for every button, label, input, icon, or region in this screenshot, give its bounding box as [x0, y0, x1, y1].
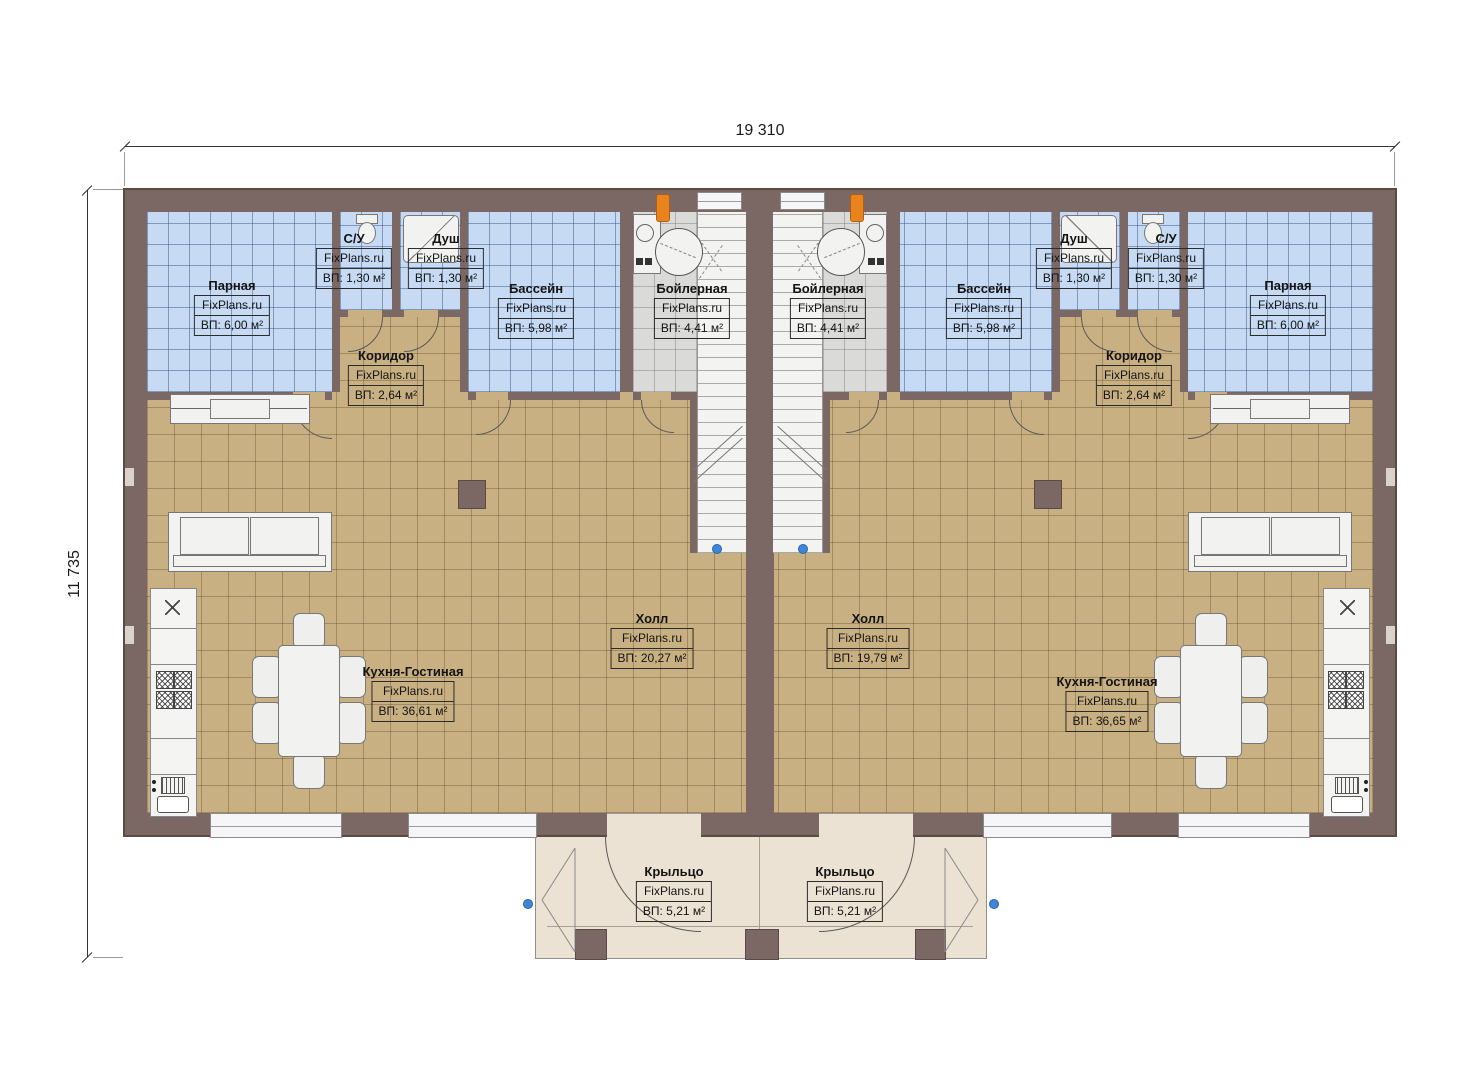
faucet-dot: [152, 780, 156, 784]
room-info-box: FixPlans.ru ВП: 5,98 м²: [498, 298, 574, 339]
sofa: [1188, 512, 1352, 572]
door-gap: [849, 392, 879, 400]
sink-basin-icon: [1331, 796, 1363, 813]
stairs: [773, 212, 823, 553]
kitchen-cabinet: [1323, 628, 1370, 666]
sink-drainer-icon: [161, 777, 185, 794]
column: [1034, 480, 1062, 509]
sink-icon: [636, 224, 654, 242]
watermark-text: FixPlans.ru: [828, 629, 909, 648]
sofa: [168, 512, 332, 572]
room-name: Бассейн: [498, 281, 574, 296]
room-info-box: FixPlans.ru ВП: 36,61 м²: [372, 681, 455, 722]
dimension-width-label: 19 310: [736, 122, 785, 140]
watermark-text: FixPlans.ru: [612, 629, 693, 648]
room-name: Кухня-Гостиная: [362, 664, 463, 679]
chair: [293, 753, 325, 789]
faucet-dot: [1364, 788, 1368, 792]
chair: [293, 613, 325, 649]
room-area: ВП: 2,64 м²: [1097, 385, 1171, 405]
room-name: Холл: [827, 611, 910, 626]
dimension-extension: [124, 152, 125, 186]
room-name: Бойлерная: [790, 281, 866, 296]
watermark-text: FixPlans.ru: [1251, 296, 1325, 315]
room-label-porch-left: Крыльцо FixPlans.ru ВП: 5,21 м²: [636, 864, 712, 922]
porch-edge-line: [547, 926, 973, 927]
wall-segment: [1120, 212, 1128, 310]
room-area: ВП: 1,30 м²: [409, 268, 483, 288]
room-label-boiler-right: Бойлерная FixPlans.ru ВП: 4,41 м²: [790, 281, 866, 339]
room-label-su-left: С/У FixPlans.ru ВП: 1,30 м²: [316, 231, 392, 289]
room-info-box: FixPlans.ru ВП: 4,41 м²: [790, 298, 866, 339]
window: [408, 813, 537, 838]
room-area: ВП: 20,27 м²: [612, 648, 693, 668]
watermark-text: FixPlans.ru: [1129, 249, 1203, 268]
watermark-text: FixPlans.ru: [947, 299, 1021, 318]
room-name: Холл: [611, 611, 694, 626]
meter-icon: [868, 258, 875, 265]
watermark-text: FixPlans.ru: [1067, 692, 1148, 711]
door-gap: [476, 392, 508, 400]
room-label-kitchen-left: Кухня-Гостиная FixPlans.ru ВП: 36,61 м²: [362, 664, 463, 722]
console-box: [1250, 399, 1310, 419]
cabinet-x-icon: [1340, 600, 1355, 615]
room-name: Коридор: [348, 348, 424, 363]
kitchen-cabinet: [150, 738, 197, 776]
room-info-box: FixPlans.ru ВП: 2,64 м²: [348, 365, 424, 406]
meter-icon: [636, 258, 643, 265]
faucet-dot: [1364, 780, 1368, 784]
door-gap: [1082, 310, 1116, 317]
room-area: ВП: 4,41 м²: [791, 318, 865, 338]
grid-node-marker: [523, 899, 533, 909]
room-area: ВП: 36,65 м²: [1067, 711, 1148, 731]
meter-icon: [645, 258, 652, 265]
room-name: С/У: [1128, 231, 1204, 246]
stove-burner-icon: [174, 691, 192, 709]
window: [697, 192, 742, 210]
room-area: ВП: 1,30 м²: [1037, 268, 1111, 288]
stove-burner-icon: [1346, 671, 1364, 689]
wall-segment: [620, 212, 633, 392]
window: [780, 192, 825, 210]
sofa-cushion: [1271, 517, 1340, 555]
entrance-door-gap: [819, 813, 913, 837]
watermark-text: FixPlans.ru: [808, 882, 882, 901]
room-label-su-right: С/У FixPlans.ru ВП: 1,30 м²: [1128, 231, 1204, 289]
watermark-text: FixPlans.ru: [317, 249, 391, 268]
window: [983, 813, 1112, 838]
room-area: ВП: 19,79 м²: [828, 648, 909, 668]
room-name: Парная: [1250, 278, 1326, 293]
sink-basin-icon: [157, 796, 189, 813]
sink-icon: [866, 224, 884, 242]
kitchen-cabinet: [1323, 738, 1370, 776]
door-gap: [1138, 310, 1172, 317]
room-area: ВП: 5,21 м²: [808, 901, 882, 921]
room-name: Крыльцо: [807, 864, 883, 879]
room-name: Кухня-Гостиная: [1056, 674, 1157, 689]
kitchen-cabinet: [150, 628, 197, 666]
stairs: [697, 212, 747, 553]
sofa-cushion: [1201, 517, 1270, 555]
dining-table: [278, 645, 340, 757]
room-label-kitchen-right: Кухня-Гостиная FixPlans.ru ВП: 36,65 м²: [1056, 674, 1157, 732]
boiler-tank-icon: [655, 228, 703, 276]
watermark-text: FixPlans.ru: [373, 682, 454, 701]
porch-pillar: [575, 929, 607, 960]
room-info-box: FixPlans.ru ВП: 5,21 м²: [636, 881, 712, 922]
sofa-cushion: [250, 517, 319, 555]
wall-marker: [1386, 468, 1395, 486]
room-label-porch-right: Крыльцо FixPlans.ru ВП: 5,21 м²: [807, 864, 883, 922]
watermark-text: FixPlans.ru: [1037, 249, 1111, 268]
room-label-dush-right: Душ FixPlans.ru ВП: 1,30 м²: [1036, 231, 1112, 289]
room-info-box: FixPlans.ru ВП: 19,79 м²: [827, 628, 910, 669]
room-label-holl-right: Холл FixPlans.ru ВП: 19,79 м²: [827, 611, 910, 669]
dimension-line-left: [87, 190, 88, 957]
watermark-text: FixPlans.ru: [655, 299, 729, 318]
room-name: Коридор: [1096, 348, 1172, 363]
entrance-door-gap: [607, 813, 701, 837]
room-info-box: FixPlans.ru ВП: 1,30 м²: [1036, 248, 1112, 289]
door-gap: [348, 310, 382, 317]
sofa-cushion: [180, 517, 249, 555]
room-label-koridor-right: Коридор FixPlans.ru ВП: 2,64 м²: [1096, 348, 1172, 406]
room-area: ВП: 1,30 м²: [317, 268, 391, 288]
cabinet-x-icon: [165, 600, 180, 615]
room-info-box: FixPlans.ru ВП: 5,98 м²: [946, 298, 1022, 339]
floor-plan-canvas: 19 310 11 735: [0, 0, 1474, 1080]
room-name: Душ: [408, 231, 484, 246]
porch-pillar: [915, 929, 946, 960]
stove-burner-icon: [156, 671, 174, 689]
wall-segment: [690, 400, 697, 553]
porch-ramp-right: [944, 846, 980, 954]
room-area: ВП: 36,61 м²: [373, 701, 454, 721]
wall-segment: [823, 400, 830, 553]
room-label-parnaya-right: Парная FixPlans.ru ВП: 6,00 м²: [1250, 278, 1326, 336]
wall-marker: [1386, 626, 1395, 644]
room-area: ВП: 1,30 м²: [1129, 268, 1203, 288]
tv-console: [170, 394, 310, 424]
chair: [1238, 702, 1268, 744]
room-name: С/У: [316, 231, 392, 246]
sofa-back: [1194, 555, 1347, 567]
wall-marker: [125, 468, 134, 486]
room-info-box: FixPlans.ru ВП: 2,64 м²: [1096, 365, 1172, 406]
chair: [1195, 613, 1227, 649]
room-label-dush-left: Душ FixPlans.ru ВП: 1,30 м²: [408, 231, 484, 289]
dimension-extension: [93, 957, 123, 958]
room-info-box: FixPlans.ru ВП: 6,00 м²: [194, 295, 270, 336]
grid-node-marker: [712, 544, 722, 554]
watermark-text: FixPlans.ru: [409, 249, 483, 268]
watermark-text: FixPlans.ru: [637, 882, 711, 901]
chair: [1238, 656, 1268, 698]
water-heater-icon: [656, 194, 670, 222]
room-label-boiler-left: Бойлерная FixPlans.ru ВП: 4,41 м²: [654, 281, 730, 339]
room-name: Бойлерная: [654, 281, 730, 296]
room-info-box: FixPlans.ru ВП: 1,30 м²: [408, 248, 484, 289]
dimension-extension: [1394, 152, 1395, 186]
room-area: ВП: 5,98 м²: [947, 318, 1021, 338]
window: [1178, 813, 1310, 838]
boiler-tank-icon: [817, 228, 865, 276]
room-name: Парная: [194, 278, 270, 293]
room-label-bassein-right: Бассейн FixPlans.ru ВП: 5,98 м²: [946, 281, 1022, 339]
stove-burner-icon: [174, 671, 192, 689]
watermark-text: FixPlans.ru: [195, 296, 269, 315]
room-name: Бассейн: [946, 281, 1022, 296]
stove-burner-icon: [1328, 691, 1346, 709]
water-heater-icon: [850, 194, 864, 222]
door-gap: [1012, 392, 1044, 400]
room-info-box: FixPlans.ru ВП: 1,30 м²: [1128, 248, 1204, 289]
dimension-extension: [93, 189, 123, 190]
party-wall: [746, 190, 774, 835]
room-area: ВП: 5,21 м²: [637, 901, 711, 921]
room-info-box: FixPlans.ru ВП: 36,65 м²: [1066, 691, 1149, 732]
grid-node-marker: [989, 899, 999, 909]
door-gap: [404, 310, 438, 317]
door-gap: [641, 392, 671, 400]
wall-marker: [125, 626, 134, 644]
chair: [1195, 753, 1227, 789]
tv-console: [1210, 394, 1350, 424]
watermark-text: FixPlans.ru: [499, 299, 573, 318]
room-area: ВП: 6,00 м²: [195, 315, 269, 335]
wall-segment: [887, 212, 900, 392]
room-label-koridor-left: Коридор FixPlans.ru ВП: 2,64 м²: [348, 348, 424, 406]
sink-drainer-icon: [1335, 777, 1359, 794]
watermark-text: FixPlans.ru: [791, 299, 865, 318]
faucet-dot: [152, 788, 156, 792]
room-name: Душ: [1036, 231, 1112, 246]
room-info-box: FixPlans.ru ВП: 20,27 м²: [611, 628, 694, 669]
dining-table: [1180, 645, 1242, 757]
room-area: ВП: 2,64 м²: [349, 385, 423, 405]
room-label-holl-left: Холл FixPlans.ru ВП: 20,27 м²: [611, 611, 694, 669]
wall-segment: [392, 212, 400, 310]
room-info-box: FixPlans.ru ВП: 1,30 м²: [316, 248, 392, 289]
room-area: ВП: 4,41 м²: [655, 318, 729, 338]
stove-burner-icon: [1346, 691, 1364, 709]
room-area: ВП: 6,00 м²: [1251, 315, 1325, 335]
room-info-box: FixPlans.ru ВП: 4,41 м²: [654, 298, 730, 339]
meter-icon: [877, 258, 884, 265]
window: [210, 813, 342, 838]
room-label-parnaya-left: Парная FixPlans.ru ВП: 6,00 м²: [194, 278, 270, 336]
dimension-line-top: [125, 146, 1395, 147]
room-area: ВП: 5,98 м²: [499, 318, 573, 338]
grid-node-marker: [798, 544, 808, 554]
room-info-box: FixPlans.ru ВП: 5,21 м²: [807, 881, 883, 922]
watermark-text: FixPlans.ru: [1097, 366, 1171, 385]
room-name: Крыльцо: [636, 864, 712, 879]
porch-pillar: [745, 929, 779, 960]
column: [458, 480, 486, 509]
porch-ramp-left: [540, 846, 576, 954]
dimension-height-label: 11 735: [66, 534, 84, 614]
room-label-bassein-left: Бассейн FixPlans.ru ВП: 5,98 м²: [498, 281, 574, 339]
stove-burner-icon: [156, 691, 174, 709]
sofa-back: [173, 555, 326, 567]
stove-burner-icon: [1328, 671, 1346, 689]
watermark-text: FixPlans.ru: [349, 366, 423, 385]
console-box: [210, 399, 270, 419]
room-info-box: FixPlans.ru ВП: 6,00 м²: [1250, 295, 1326, 336]
